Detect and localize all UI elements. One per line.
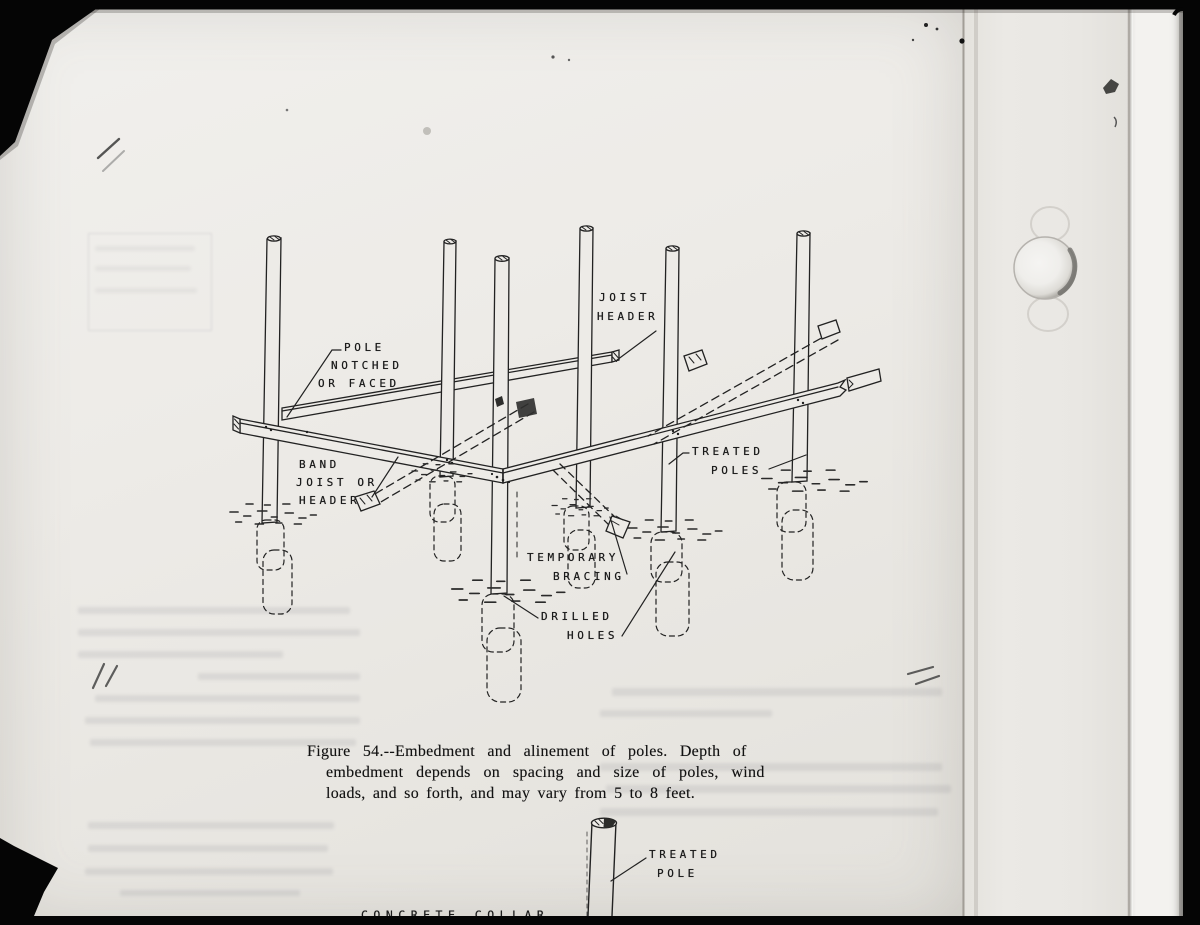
corner-cut-top-left (0, 9, 96, 156)
scanned-photo-stage: POLE NOTCHED OR FACED JOIST HEADER BAND … (0, 0, 1200, 925)
frame-top (0, 0, 1200, 10)
frame-right (1183, 0, 1200, 925)
corner-cut-bottom-left (0, 838, 58, 916)
photo-frame (0, 0, 1200, 925)
frame-bottom (0, 916, 1200, 925)
